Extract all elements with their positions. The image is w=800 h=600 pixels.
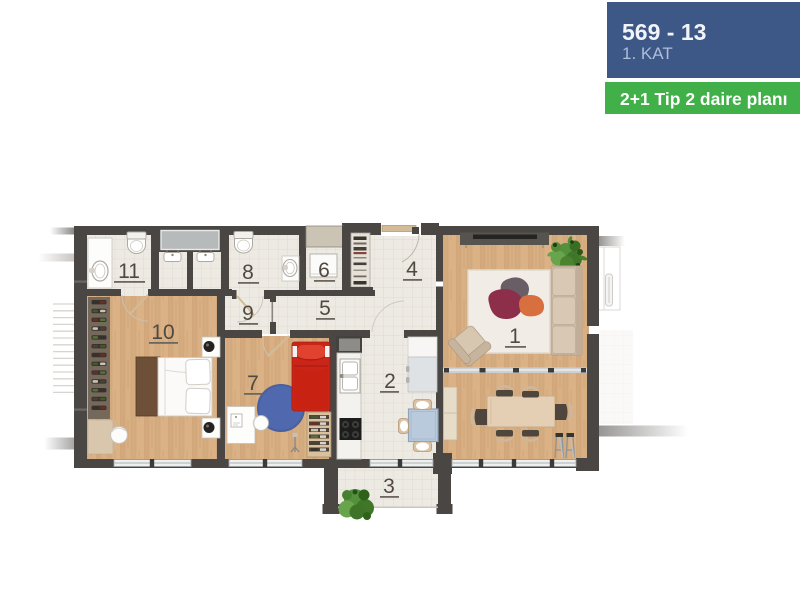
svg-text:11: 11 — [118, 260, 140, 283]
svg-text:5: 5 — [319, 297, 331, 320]
svg-text:10: 10 — [151, 321, 174, 344]
svg-text:1: 1 — [509, 325, 521, 348]
svg-text:9: 9 — [242, 302, 254, 325]
svg-text:3: 3 — [383, 475, 395, 498]
svg-text:2+1 Tip 2 daire planı: 2+1 Tip 2 daire planı — [620, 89, 787, 109]
svg-text:4: 4 — [406, 258, 418, 281]
svg-text:7: 7 — [247, 372, 259, 395]
svg-text:6: 6 — [318, 259, 330, 282]
svg-text:569 - 13: 569 - 13 — [622, 19, 706, 45]
svg-text:8: 8 — [242, 261, 254, 284]
svg-text:2: 2 — [384, 370, 396, 393]
svg-text:1. KAT: 1. KAT — [622, 44, 673, 63]
